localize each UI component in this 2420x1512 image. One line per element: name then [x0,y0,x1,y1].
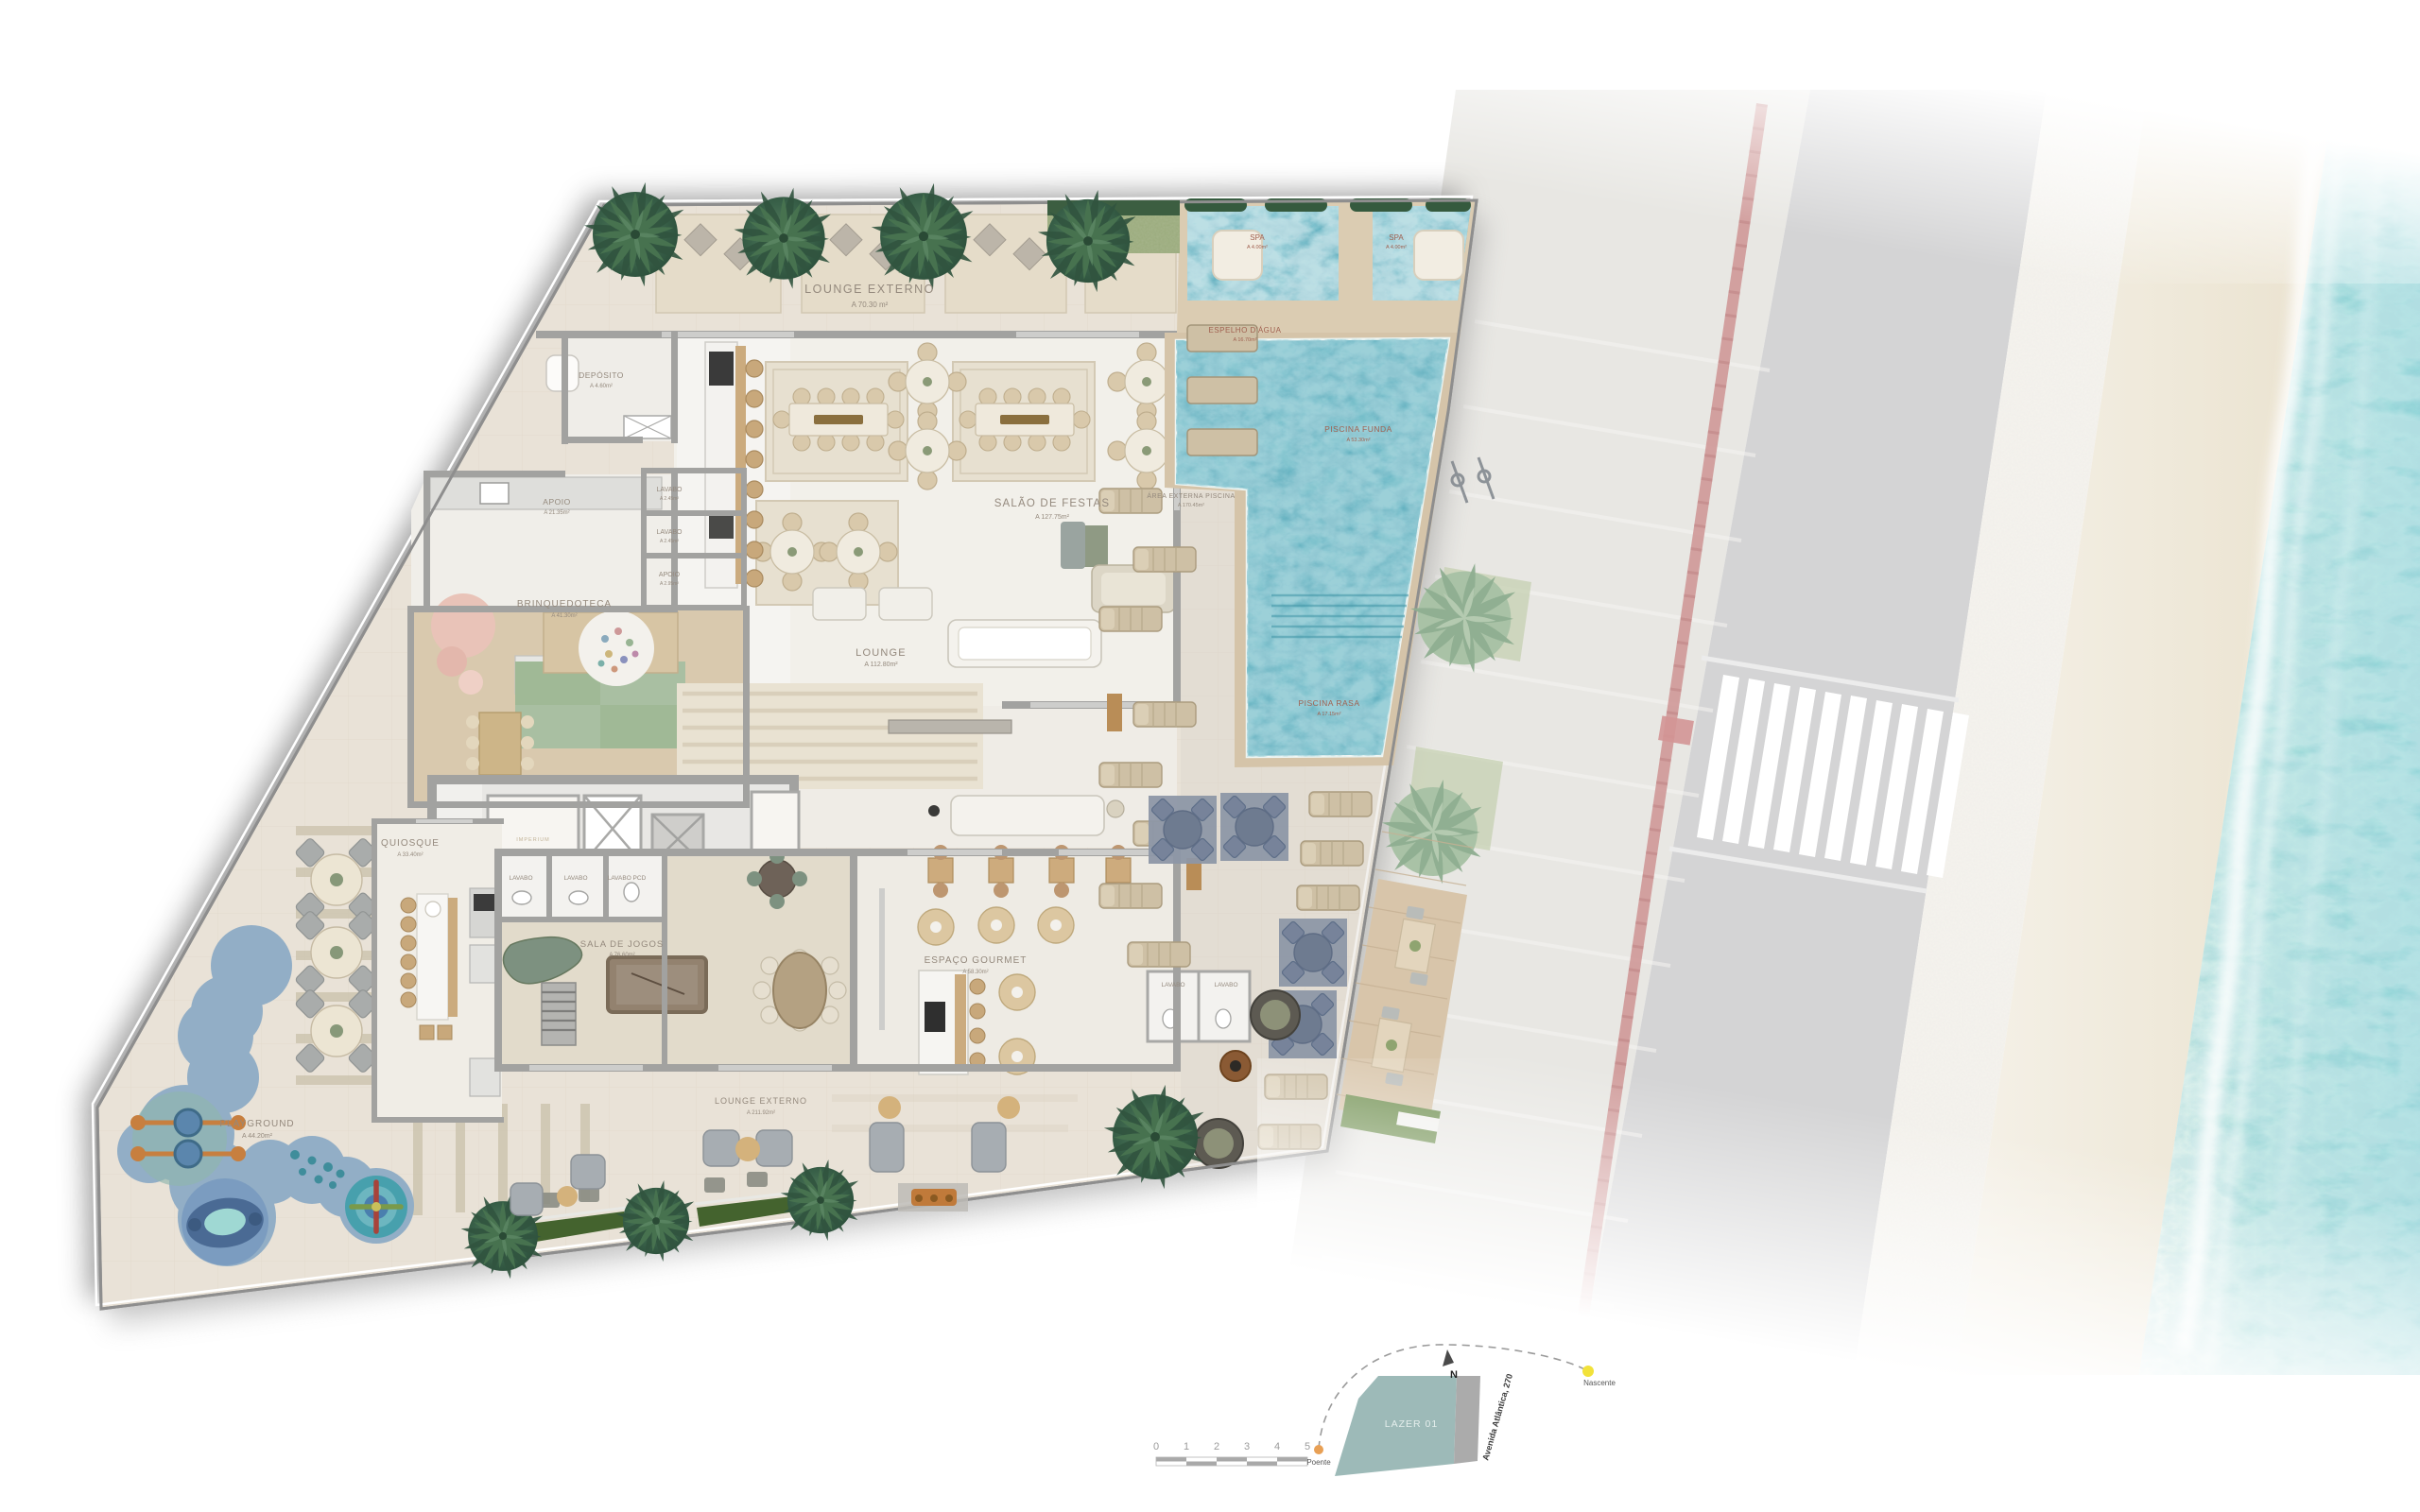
svg-text:5: 5 [1305,1441,1310,1452]
svg-text:3: 3 [1244,1441,1250,1452]
svg-text:ESPAÇO GOURMET: ESPAÇO GOURMET [925,955,1028,966]
svg-text:PISCINA RASA: PISCINA RASA [1298,698,1359,708]
svg-text:LOUNGE EXTERNO: LOUNGE EXTERNO [715,1096,807,1106]
svg-text:A 44.20m²: A 44.20m² [242,1133,273,1140]
svg-text:PLAYGROUND: PLAYGROUND [219,1119,294,1129]
svg-text:Nascente: Nascente [1583,1379,1616,1387]
svg-text:A 33.40m²: A 33.40m² [397,852,423,858]
svg-text:SALA DE JOGOS: SALA DE JOGOS [580,939,665,950]
svg-text:0: 0 [1153,1441,1159,1452]
svg-text:A 21.35m²: A 21.35m² [544,510,569,516]
svg-text:A 53.30m²: A 53.30m² [1346,438,1370,443]
svg-text:A 2.95m²: A 2.95m² [660,581,679,587]
svg-text:LAVABO: LAVABO [509,875,532,882]
svg-text:SALÃO DE FESTAS: SALÃO DE FESTAS [994,497,1111,509]
svg-text:BRINQUEDOTECA: BRINQUEDOTECA [517,599,612,610]
svg-text:LAZER 01: LAZER 01 [1385,1418,1438,1430]
svg-text:LAVABO: LAVABO [657,529,683,536]
svg-text:ÁREA EXTERNA PISCINA: ÁREA EXTERNA PISCINA [1147,491,1235,500]
svg-text:A 17.15m²: A 17.15m² [1317,712,1340,717]
svg-text:4: 4 [1274,1441,1280,1452]
svg-text:A 112.80m²: A 112.80m² [864,661,898,668]
svg-text:LAVABO: LAVABO [1214,982,1237,988]
svg-text:APOIO: APOIO [543,497,570,507]
svg-text:N: N [1450,1369,1458,1381]
svg-text:A 170.45m²: A 170.45m² [1178,503,1204,508]
svg-text:ESPELHO D'ÁGUA: ESPELHO D'ÁGUA [1209,326,1282,335]
svg-text:QUIOSQUE: QUIOSQUE [381,838,440,849]
svg-text:A 70.30 m²: A 70.30 m² [852,301,889,309]
svg-text:LAVABO PCD: LAVABO PCD [608,875,647,882]
svg-text:LAVABO: LAVABO [657,487,683,493]
svg-text:A 41.30m²: A 41.30m² [551,613,577,619]
svg-text:A 4.60m²: A 4.60m² [590,384,613,389]
svg-text:LOUNGE: LOUNGE [856,647,907,659]
svg-text:1: 1 [1184,1441,1189,1452]
svg-text:DEPÓSITO: DEPÓSITO [579,370,624,380]
svg-text:A 58.30m²: A 58.30m² [962,970,988,975]
svg-text:LOUNGE EXTERNO: LOUNGE EXTERNO [804,283,935,296]
svg-text:A 2.45m²: A 2.45m² [660,496,679,502]
svg-text:A 16.70m²: A 16.70m² [1233,337,1256,343]
svg-text:Poente: Poente [1306,1458,1331,1467]
svg-text:LAVABO: LAVABO [563,875,587,882]
svg-text:IMPERIUM: IMPERIUM [516,837,550,843]
svg-text:APOIO: APOIO [659,572,681,578]
svg-text:A 76.60m²: A 76.60m² [609,953,634,958]
svg-text:2: 2 [1214,1441,1219,1452]
svg-text:A 2.45m²: A 2.45m² [660,539,679,544]
svg-text:A 211.92m²: A 211.92m² [747,1110,775,1116]
svg-text:A 127.75m²: A 127.75m² [1035,514,1069,521]
svg-text:PISCINA FUNDA: PISCINA FUNDA [1324,424,1392,434]
svg-text:LAVABO: LAVABO [1161,982,1184,988]
